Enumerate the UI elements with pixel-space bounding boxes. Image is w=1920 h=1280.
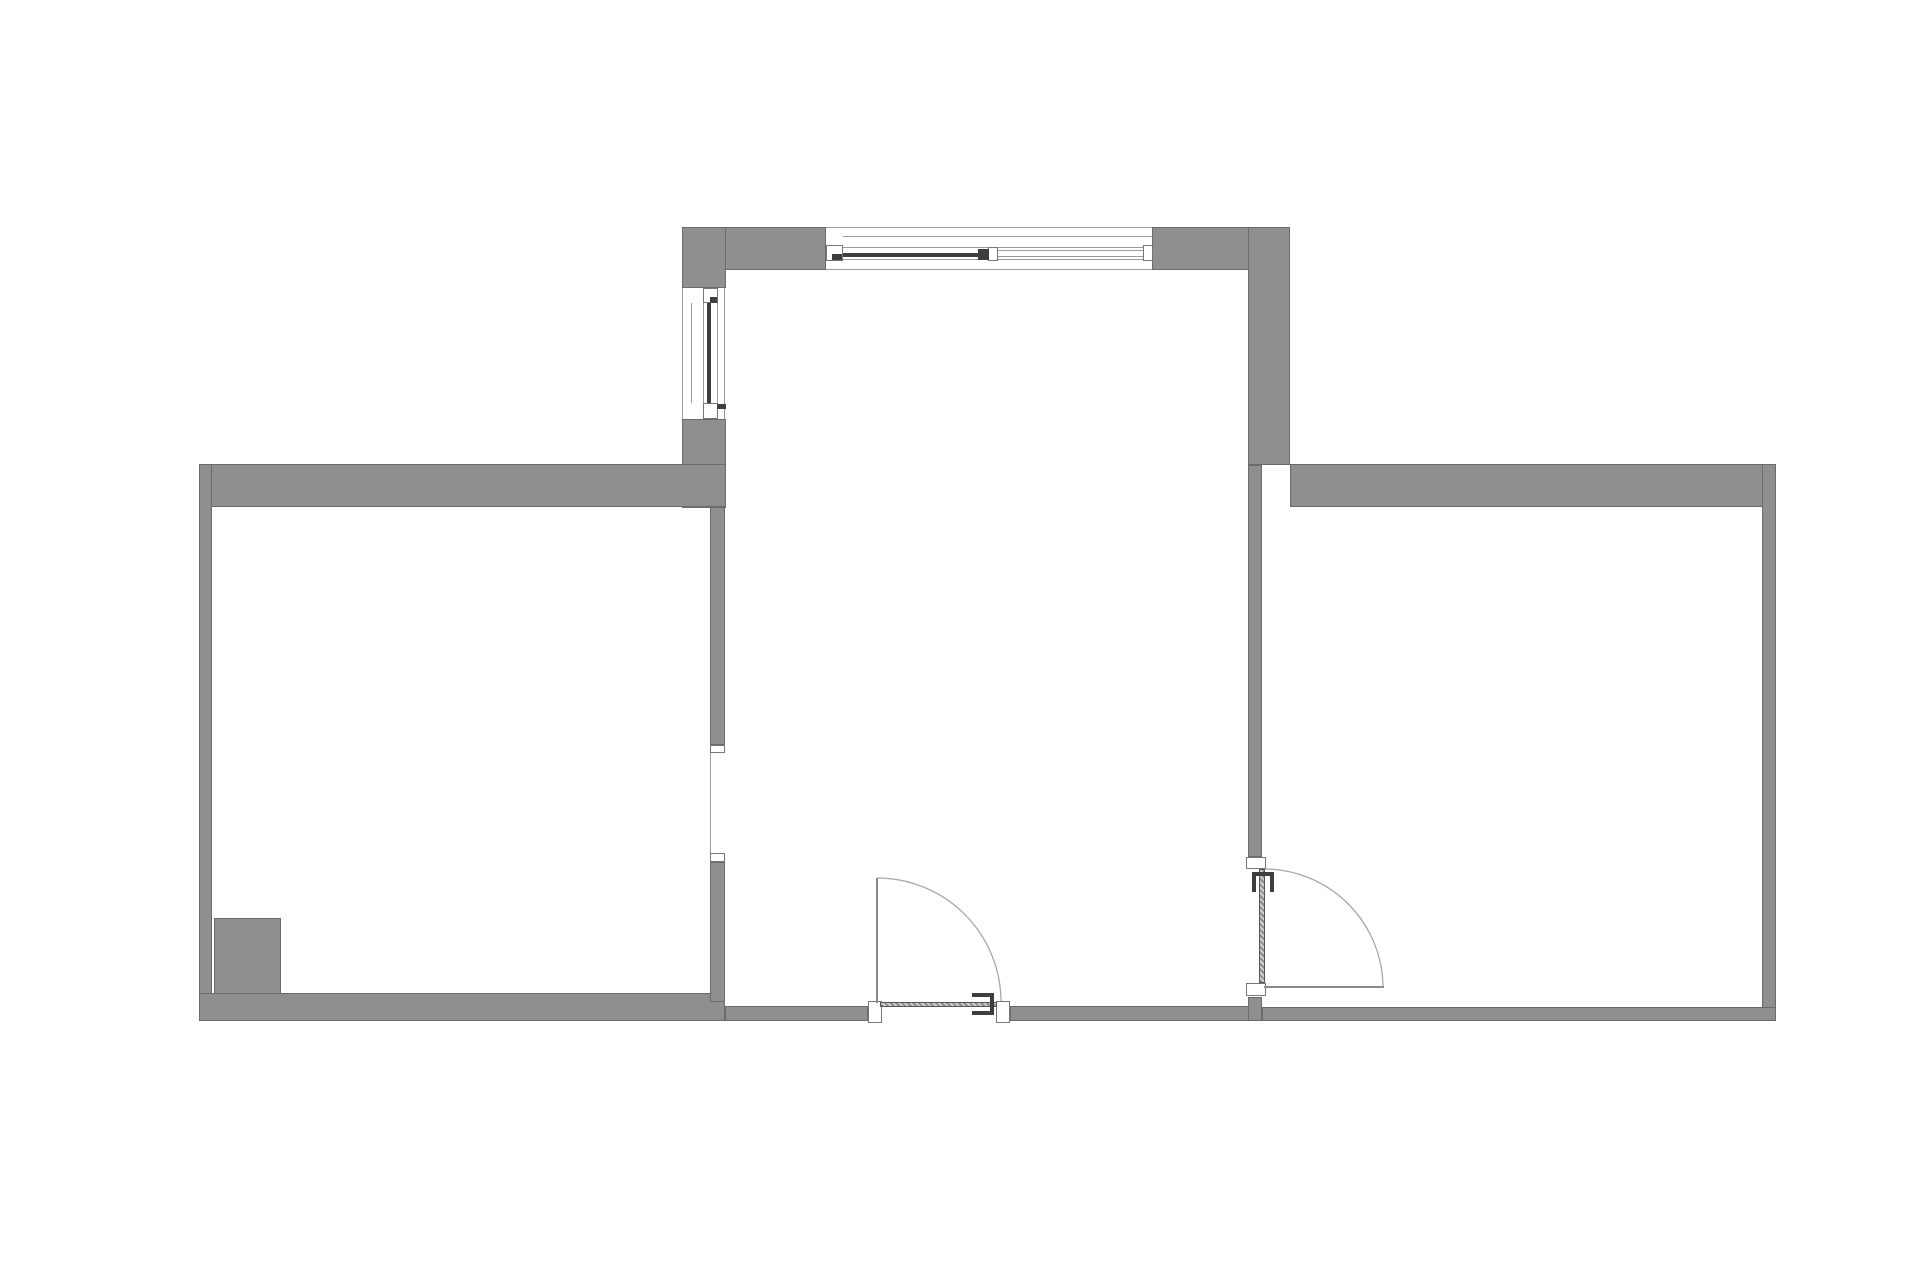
left-partition-lower <box>710 862 725 1002</box>
right-partition-lower <box>1248 997 1262 1021</box>
right-door-swing-arc <box>1264 869 1383 988</box>
left-partition-upper <box>710 507 725 745</box>
left-window-sill-line <box>691 303 692 403</box>
door-swing-arcs <box>0 0 1920 1280</box>
right-door-handle-bar <box>1252 872 1274 876</box>
center-door-jamb-right <box>996 1001 1010 1023</box>
left-opening-jamb-bottom <box>710 853 725 862</box>
column-block <box>214 918 281 994</box>
bottom-wall-left-room <box>199 993 725 1021</box>
left-opening-face-line <box>710 753 711 853</box>
right-partition-upper <box>1248 465 1262 857</box>
left-window-frame-bottom <box>703 403 718 419</box>
top-window-mullion-dark <box>978 249 989 260</box>
left-window-top-latch <box>710 297 717 303</box>
top-window-end-frame-right <box>1143 245 1153 261</box>
floor-plan-canvas <box>0 0 1920 1280</box>
central-left-wall-upper <box>682 227 726 288</box>
bottom-wall-right-room <box>1262 1007 1776 1021</box>
bottom-wall-central-left <box>725 1006 868 1021</box>
top-window-sill-line <box>843 236 1152 237</box>
right-door-jamb-top <box>1246 857 1266 869</box>
center-door-handle-stem <box>990 993 994 1015</box>
left-window-handle <box>717 404 726 409</box>
bottom-wall-central-right <box>1010 1006 1262 1021</box>
left-window-outer-face <box>682 288 683 419</box>
left-room-top-wall <box>199 464 726 507</box>
top-window-glazing <box>843 253 980 257</box>
left-window-frame-line-a <box>703 303 704 403</box>
right-door-leaf-open <box>1264 986 1384 988</box>
top-window-mullion-step <box>988 247 998 261</box>
top-window-inner-face <box>826 269 1152 270</box>
right-door-jamb-bottom <box>1246 983 1266 996</box>
central-right-wall-upper <box>1248 227 1290 465</box>
center-door-leaf-closed <box>880 1002 997 1007</box>
right-exterior-wall <box>1762 464 1776 1021</box>
floor-plan <box>0 0 1920 1280</box>
center-door-swing-arc <box>877 878 1001 1002</box>
top-window-outer-face <box>826 227 1152 228</box>
left-window-glazing <box>707 303 711 403</box>
top-window-left-latch <box>832 254 842 260</box>
left-window-frame-line-b <box>717 303 718 403</box>
top-window-pane2-line-a <box>998 250 1143 251</box>
left-exterior-wall <box>199 464 212 1021</box>
right-room-top-wall <box>1290 464 1776 507</box>
center-door-leaf-open <box>876 878 878 1003</box>
top-window-pane2-line-b <box>998 256 1143 257</box>
left-opening-jamb-top <box>710 745 725 753</box>
left-window-inner-face <box>724 288 725 419</box>
right-door-leaf-closed <box>1259 869 1265 983</box>
